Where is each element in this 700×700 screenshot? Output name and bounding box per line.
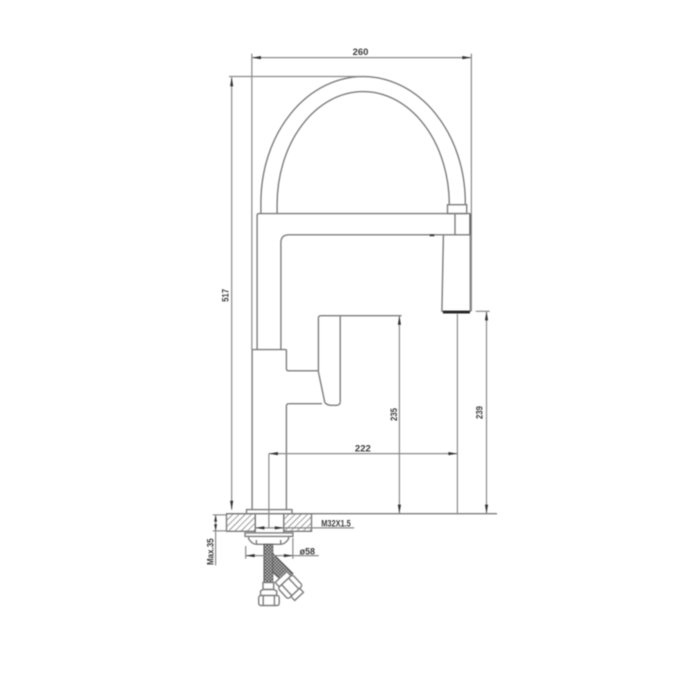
svg-text:239: 239 [473,406,484,419]
svg-text:M32X1.5: M32X1.5 [321,517,351,528]
svg-text:Max.35: Max.35 [205,538,216,565]
svg-text:517: 517 [219,289,230,302]
svg-text:ø58: ø58 [300,545,315,556]
svg-text:260: 260 [353,46,369,57]
svg-text:222: 222 [355,443,371,454]
svg-text:235: 235 [388,408,399,421]
